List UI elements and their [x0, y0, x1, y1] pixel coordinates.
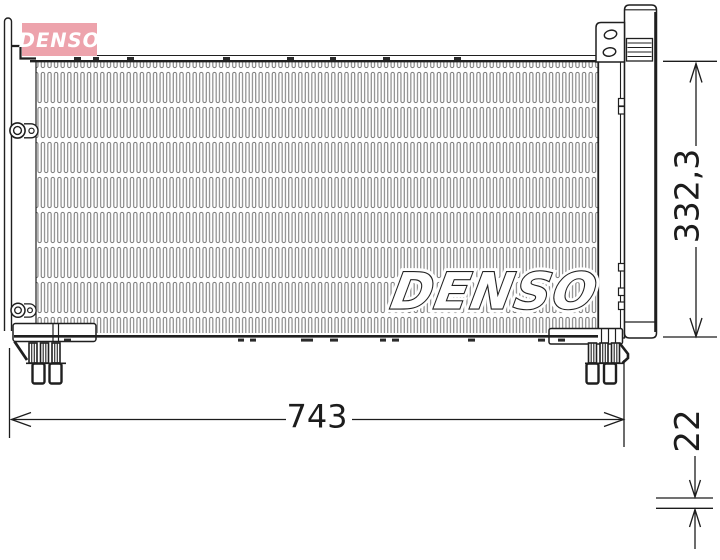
grommet-bottom-inner — [15, 307, 22, 314]
mounting-grommet-bottom — [11, 303, 36, 317]
left-arm — [13, 324, 96, 342]
right-foot-pins — [589, 343, 620, 363]
denso-logo-text: DENSO — [19, 29, 100, 52]
height-dimension-label: 332,3 — [668, 149, 707, 243]
drier-top-bracket — [596, 23, 625, 63]
condenser-drawing-page: DENSO DENSO 743 332,3 22 DENSO — [0, 0, 720, 560]
condenser-technical-drawing: DENSO DENSO 743 332,3 22 DENSO — [0, 0, 720, 560]
width-dimension: 743 — [10, 348, 625, 447]
right-foot-leg-2 — [604, 364, 616, 384]
grommet-top-tab-hole — [29, 128, 34, 133]
left-foot-leg-2 — [50, 364, 62, 384]
width-dimension-label: 743 — [286, 398, 347, 436]
grommet-bottom-tab-hole — [28, 308, 33, 313]
right-foot-leg-1 — [587, 364, 599, 384]
bottom-header-baffle-marks — [64, 339, 565, 342]
left-foot-leg-1 — [33, 364, 45, 384]
mounting-grommet-top — [10, 123, 38, 138]
depth-dimension-label: 22 — [668, 409, 708, 452]
denso-logo: DENSO — [19, 23, 100, 56]
grommet-top-inner — [14, 127, 22, 135]
left-side-plate — [5, 18, 37, 331]
left-foot-pins — [29, 343, 60, 363]
watermark-text: DENSO — [387, 262, 603, 321]
height-dimension: 332,3 — [663, 61, 717, 337]
top-header-tank — [30, 55, 597, 62]
drier-fitting — [627, 39, 653, 62]
denso-watermark: DENSO DENSO — [387, 262, 603, 321]
left-mounting-foot — [15, 342, 67, 384]
depth-dimension: 22 — [656, 409, 713, 549]
left-plate-outline — [5, 18, 12, 331]
right-mounting-foot — [585, 343, 628, 384]
left-foot-diagonal — [15, 342, 28, 361]
bottom-header — [14, 336, 598, 341]
